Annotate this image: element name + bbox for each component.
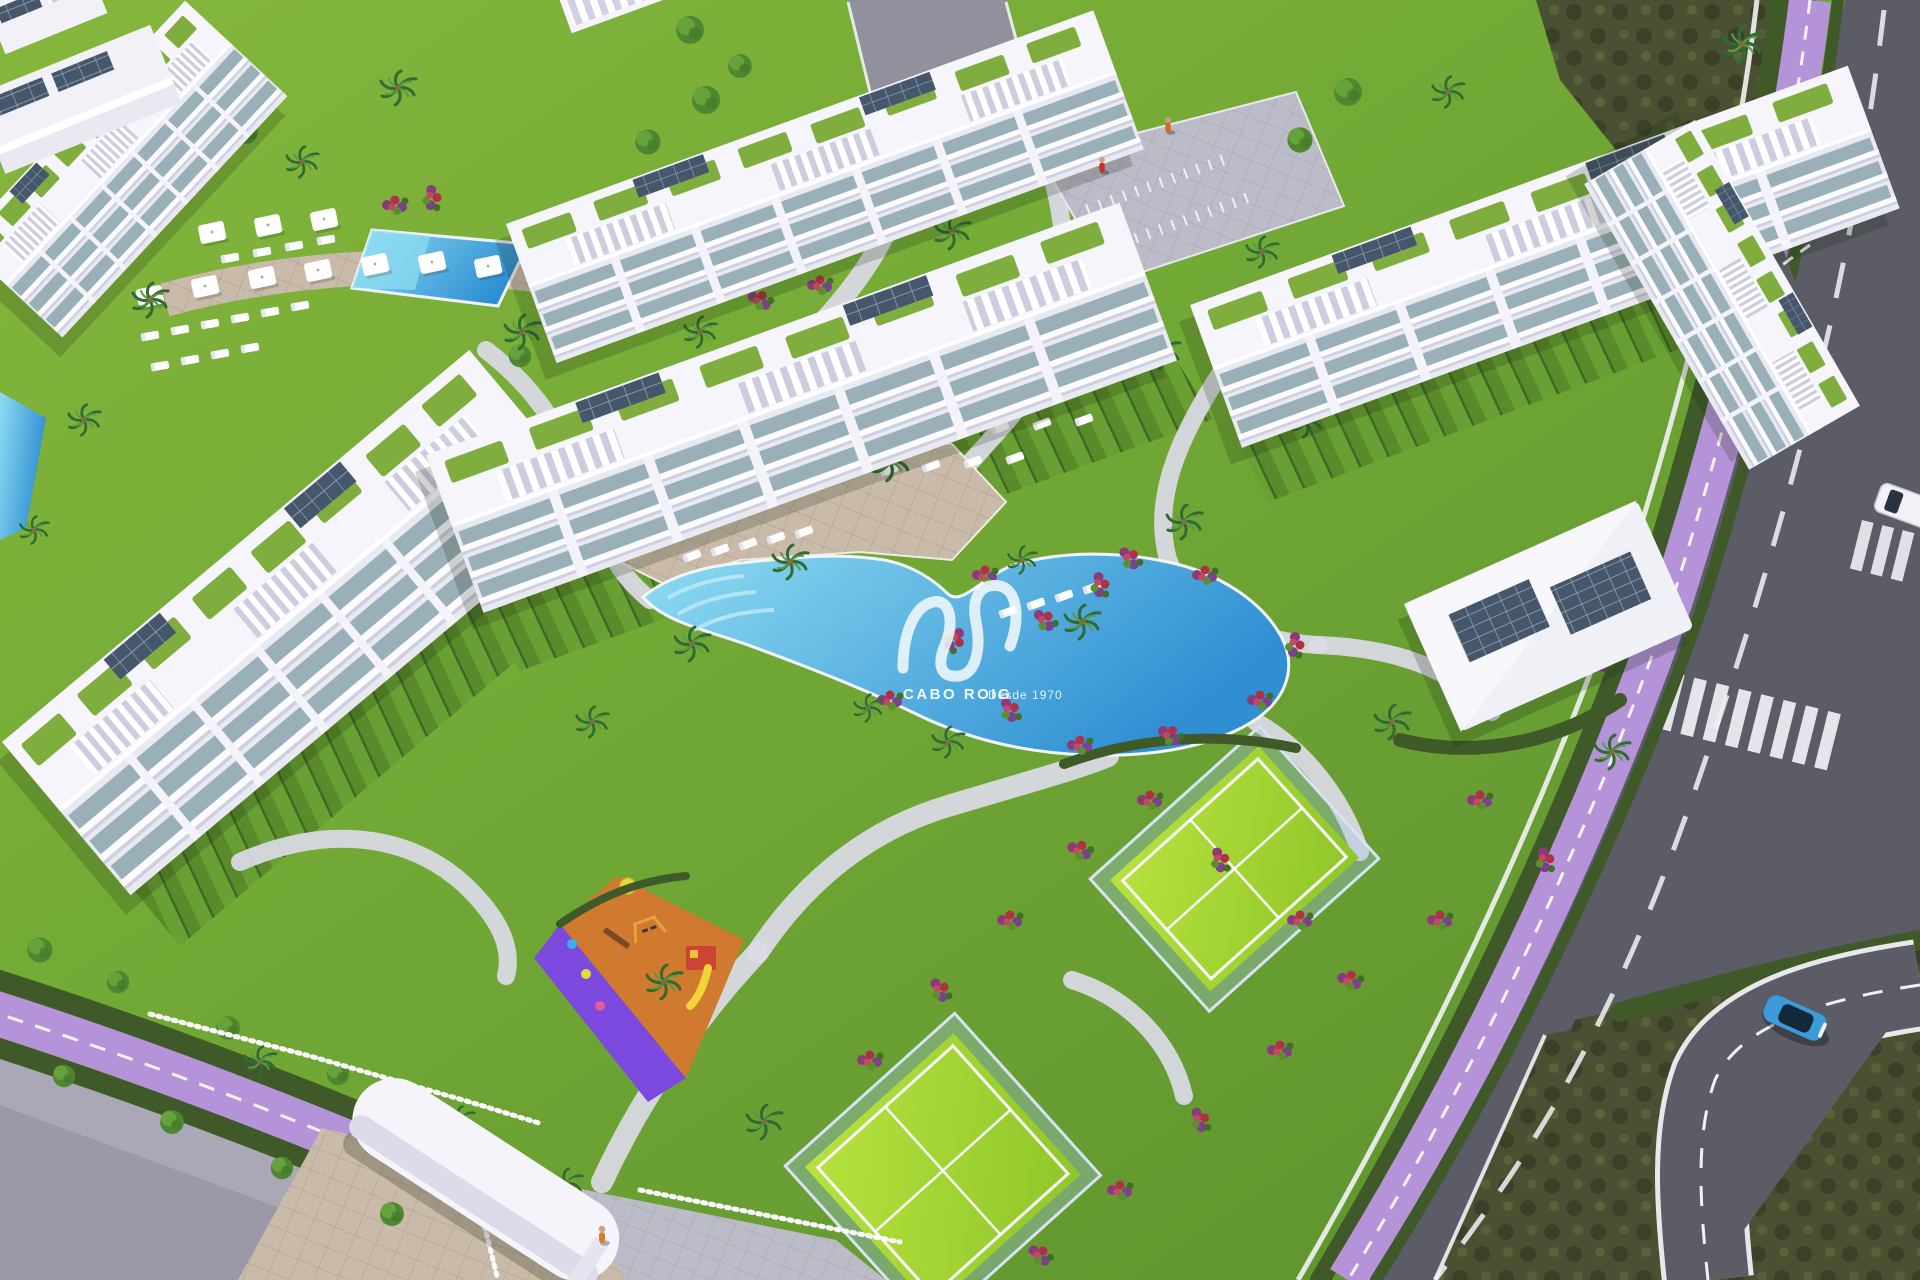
watermark-tagline: Desde 1970 [988, 688, 1063, 702]
spring-rider [595, 1001, 605, 1011]
spring-rider [581, 969, 591, 979]
scene-aerial-render: CABO ROIG Desde 1970 [0, 0, 1920, 1280]
aerial-render-image: CABO ROIG Desde 1970 [0, 0, 1920, 1280]
spring-rider [567, 939, 577, 949]
